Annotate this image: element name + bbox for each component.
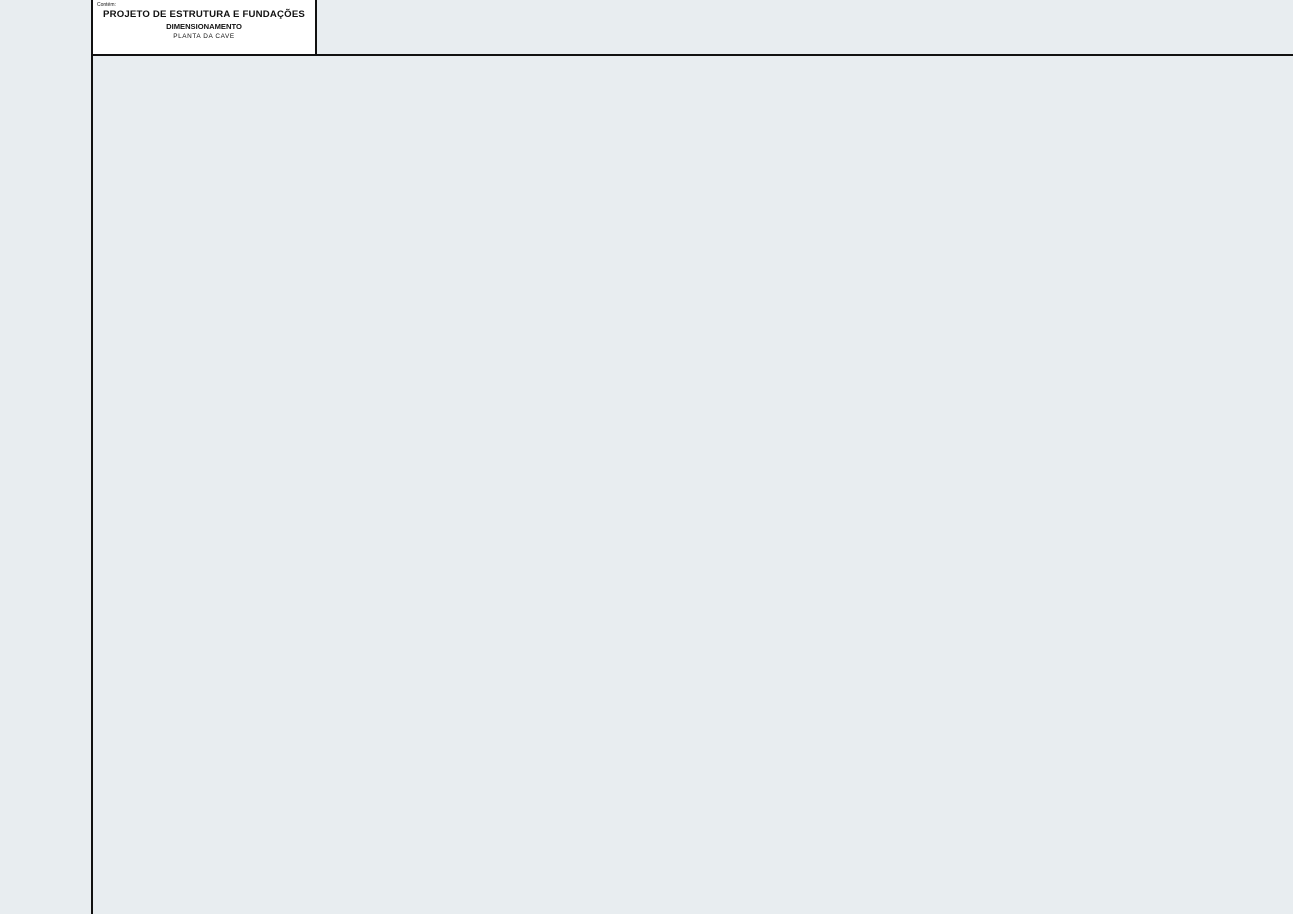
sheet-name: PLANTA DA CAVE (93, 33, 315, 40)
title-block-right-cell (317, 0, 1293, 56)
project-subtitle: DIMENSIONAMENTO (93, 22, 315, 31)
drawing-sheet: Rampa Incl.15,15% Rolo MLR MLR Contorno … (0, 0, 1293, 914)
title-block-logo-cell (0, 0, 93, 914)
title-block-bottom-cell (93, 56, 1293, 914)
contains-label: Contém: (93, 0, 315, 8)
title-block-content-cell: Contém: PROJETO DE ESTRUTURA E FUNDAÇÕES… (93, 0, 317, 56)
title-block: Contém: PROJETO DE ESTRUTURA E FUNDAÇÕES… (0, 0, 470, 92)
project-title: PROJETO DE ESTRUTURA E FUNDAÇÕES (93, 9, 315, 20)
